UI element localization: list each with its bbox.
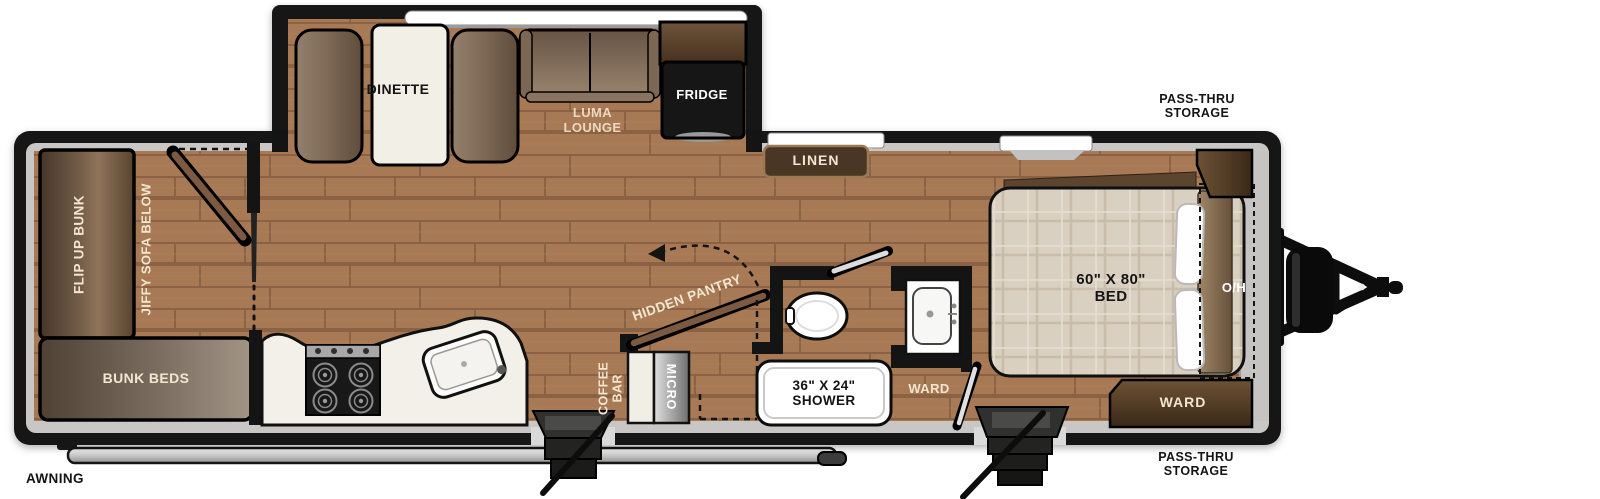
bedroom-ward-label: WARD [1123, 395, 1243, 411]
fridge-label: FRIDGE [662, 88, 742, 103]
flip-up-bunk-label: FLIP UP BUNK [71, 165, 86, 325]
toilet [786, 293, 847, 339]
pass-thru-top-label: PASS-THRU STORAGE [1117, 92, 1277, 120]
micro-label: MICRO [664, 352, 678, 422]
floorplan-canvas: DINETTE LUMA LOUNGE FRIDGE LINEN FLIP UP… [0, 0, 1600, 499]
coffee-bar-cabinet [628, 352, 654, 423]
overhead-label: O/H [1214, 281, 1254, 296]
dinette-bench-right [452, 30, 518, 162]
coffee-bar-label: COFFEE BAR [597, 343, 626, 433]
luma-lounge-label: LUMA LOUNGE [535, 106, 650, 135]
floorplan-graphics [0, 0, 1600, 499]
dinette-label: DINETTE [338, 82, 458, 98]
luma-lounge-sofa [520, 30, 660, 102]
bath-ward-label: WARD [899, 382, 959, 397]
hitch-a-frame [1272, 228, 1403, 346]
shower-label: 36" X 24" SHOWER [764, 378, 884, 408]
flip-up-bunk [40, 150, 134, 338]
fridge [660, 22, 746, 142]
vanity-sink [906, 280, 960, 354]
jiffy-sofa-label: JIFFY SOFA BELOW [140, 164, 155, 334]
bed-label: 60" X 80" BED [1041, 272, 1181, 306]
pass-thru-bottom-label: PASS-THRU STORAGE [1116, 450, 1276, 478]
stove-cooktop [306, 345, 380, 415]
linen-label: LINEN [764, 153, 868, 169]
bunk-beds-label: BUNK BEDS [61, 371, 231, 387]
awning-label: AWNING [26, 471, 146, 486]
